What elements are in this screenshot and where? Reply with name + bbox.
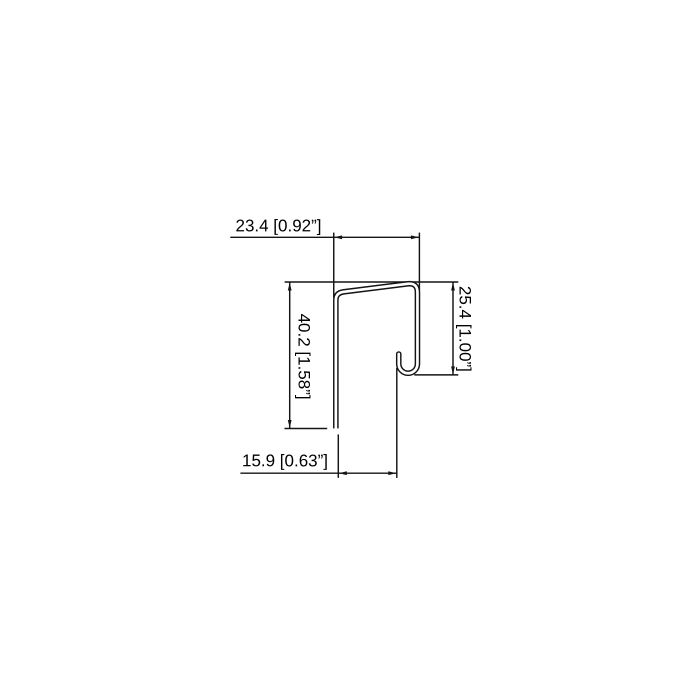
svg-text:25.4 [1.00”]: 25.4 [1.00”] [455,286,474,372]
svg-text:23.4 [0.92”]: 23.4 [0.92”] [235,216,321,235]
svg-text:15.9 [0.63”]: 15.9 [0.63”] [242,451,328,470]
svg-text:40.2 [1.58”]: 40.2 [1.58”] [294,314,313,400]
